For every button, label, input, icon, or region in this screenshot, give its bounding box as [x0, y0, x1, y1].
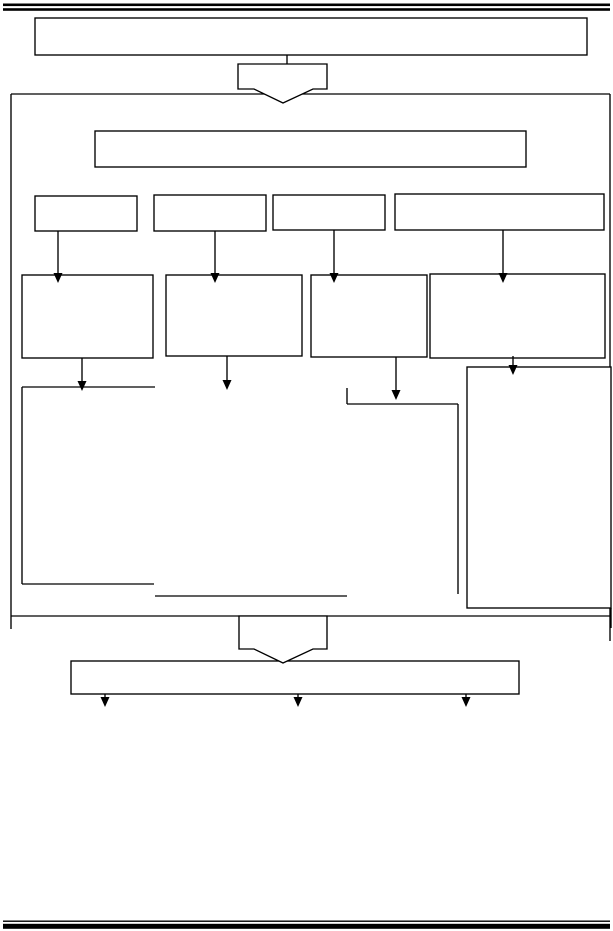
block-arrow-bottom [239, 616, 327, 663]
bottom-rule-thick [3, 924, 610, 929]
arrow-bottom-1-head [101, 697, 110, 707]
row1-box-2 [154, 195, 266, 231]
row1-box-1 [35, 196, 137, 231]
top-rule-lower [3, 8, 610, 11]
arrow-bottom-3-head [462, 697, 471, 707]
bottom-wide-box [71, 661, 519, 694]
bottom-rule-thin [3, 921, 610, 922]
row2-box-3 [311, 275, 427, 357]
block-arrow-top [238, 64, 327, 103]
arrow-bottom-2-head [294, 697, 303, 707]
arrow-row2-down-2-head [223, 380, 232, 390]
row1-box-3 [273, 195, 385, 230]
flowchart-diagram [0, 0, 613, 931]
right-tall-box [467, 367, 611, 608]
row2-box-4 [430, 274, 605, 358]
row2-box-1 [22, 275, 153, 358]
arrow-row2-down-1-head [78, 381, 87, 391]
row2-box-2 [166, 275, 302, 356]
title-box [35, 18, 587, 55]
row1-box-4 [395, 194, 604, 230]
top-rule-upper [3, 4, 610, 7]
subtitle-box [95, 131, 526, 167]
arrow-row2-down-3-head [392, 390, 401, 400]
document-page [0, 0, 613, 931]
